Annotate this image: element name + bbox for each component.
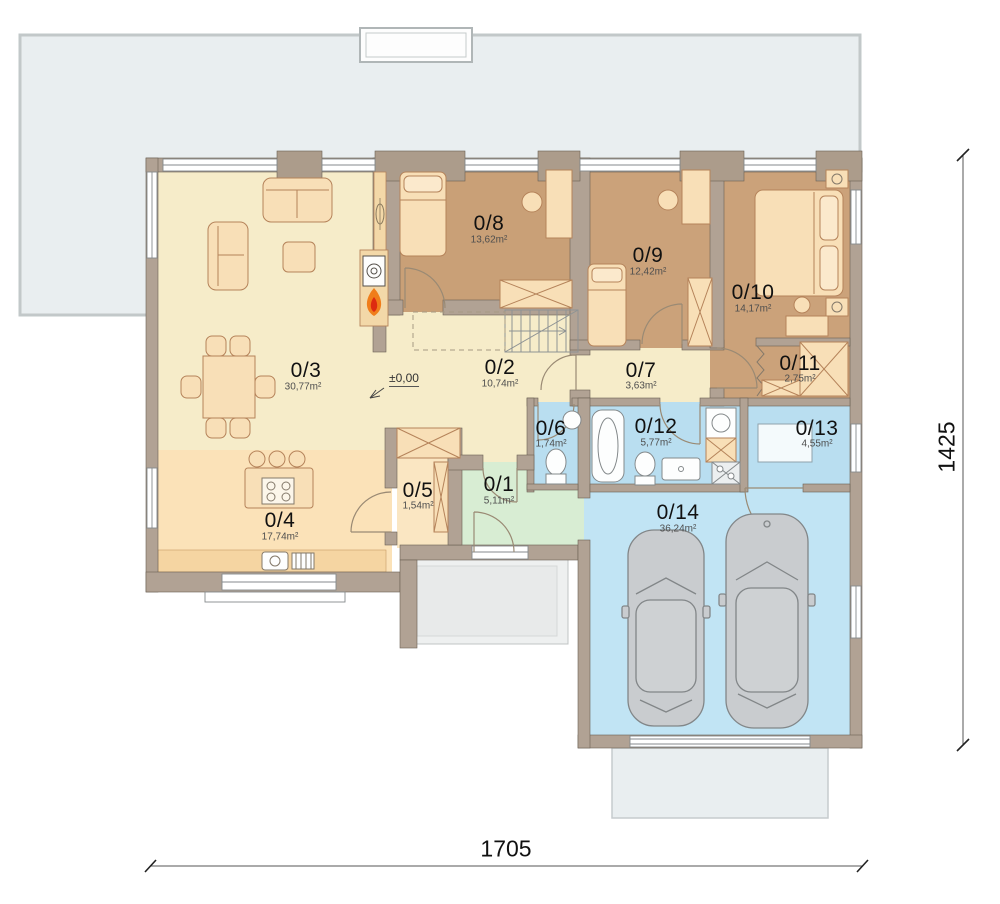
room-label-0-3: 0/3 [291,359,322,383]
room-area-0-5: 1,54m² [402,501,433,512]
room-area-0-10: 14,17m² [735,304,772,315]
room-area-0-12: 5,77m² [640,438,671,449]
room-area-0-11: 2,75m² [784,374,815,385]
room-area-0-3: 30,77m² [285,382,322,393]
car-left [622,530,710,726]
room-label-0-1: 0/1 [484,473,515,497]
room-label-0-4: 0/4 [265,509,296,533]
room-area-0-7: 3,63m² [625,381,656,392]
driveway [612,748,828,818]
room-area-0-8: 13,62m² [471,235,508,246]
room-area-0-9: 12,42m² [630,267,667,278]
room-label-0-14: 0/14 [657,501,700,525]
wardrobe-icon [434,462,448,532]
entrance-porch [404,556,568,644]
room-area-0-14: 36,24m² [660,524,697,535]
wardrobe-icon [500,280,572,308]
cabinet-icon [706,438,736,462]
room-area-0-6: 1,74m² [535,439,566,450]
car-right [719,514,815,728]
floor-plan: 0/1 5,11m² 0/2 10,74m² 0/3 30,77m² 0/4 1… [0,0,1000,904]
heater-icon [712,462,740,484]
room-label-0-7: 0/7 [626,359,657,383]
room-label-0-11: 0/11 [779,352,820,376]
skylight-box [360,28,472,62]
dimension-right: 1425 [934,421,961,472]
wardrobe-icon [688,278,712,346]
room-area-0-2: 10,74m² [482,379,519,390]
room-label-0-6: 0/6 [536,417,567,441]
dimension-bottom: 1705 [480,836,531,863]
level-mark: ±0,00 [389,371,419,387]
room-label-0-10: 0/10 [732,281,775,305]
room-label-0-5: 0/5 [403,479,434,503]
room-label-0-13: 0/13 [796,417,839,441]
room-area-0-13: 4,55m² [801,439,832,450]
room-label-0-2: 0/2 [485,356,516,380]
room-label-0-12: 0/12 [635,415,678,439]
room-label-0-9: 0/9 [633,244,664,268]
wardrobe-icon [397,428,460,458]
room-label-0-8: 0/8 [474,212,505,236]
room-area-0-1: 5,11m² [484,496,514,507]
room-area-0-4: 17,74m² [262,532,299,543]
